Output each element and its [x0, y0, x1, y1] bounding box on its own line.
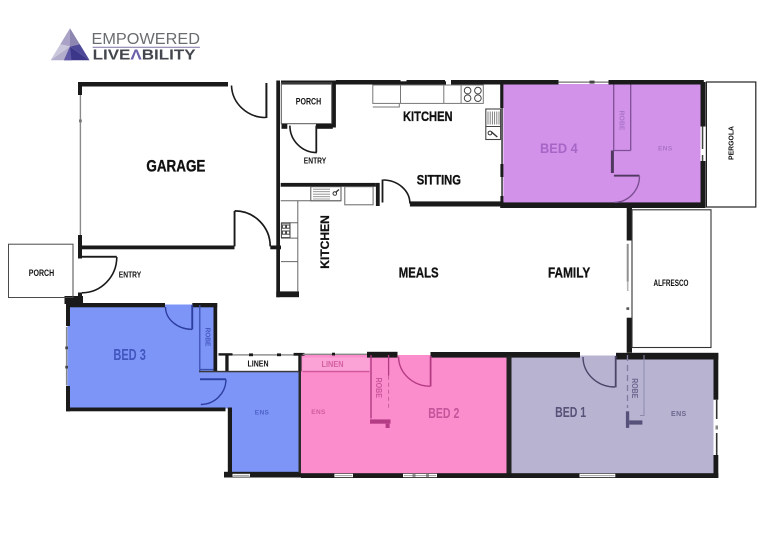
svg-text:BED 1: BED 1 — [555, 405, 586, 421]
svg-text:ROBE: ROBE — [204, 328, 211, 347]
svg-text:ROBE: ROBE — [618, 111, 627, 131]
svg-text:ENS: ENS — [671, 411, 687, 418]
svg-text:KITCHEN: KITCHEN — [320, 215, 332, 269]
svg-text:ENS: ENS — [311, 409, 326, 416]
svg-text:LIVEΛBILITY: LIVEΛBILITY — [93, 48, 196, 64]
svg-text:ALFRESCO: ALFRESCO — [654, 278, 689, 289]
svg-text:ENS: ENS — [255, 409, 270, 416]
svg-text:ENTRY: ENTRY — [119, 270, 142, 280]
svg-text:EMPOWERED: EMPOWERED — [92, 31, 201, 48]
svg-text:ENS: ENS — [658, 146, 673, 153]
svg-text:ROBE: ROBE — [630, 378, 639, 398]
svg-text:LINEN: LINEN — [322, 359, 344, 369]
svg-text:GARAGE: GARAGE — [146, 157, 205, 176]
svg-text:LINEN: LINEN — [248, 358, 269, 368]
svg-text:FAMILY: FAMILY — [548, 265, 590, 282]
svg-text:ROBE: ROBE — [374, 378, 383, 399]
svg-text:SITTING: SITTING — [417, 172, 461, 188]
svg-text:KITCHEN: KITCHEN — [403, 108, 453, 124]
svg-text:PERGOLA: PERGOLA — [726, 126, 735, 160]
svg-text:PORCH: PORCH — [29, 268, 54, 278]
svg-text:BED 3: BED 3 — [113, 347, 146, 364]
svg-text:MEALS: MEALS — [399, 265, 439, 282]
svg-text:BED 4: BED 4 — [540, 141, 578, 156]
svg-text:ENTRY: ENTRY — [304, 155, 327, 165]
svg-text:BED 2: BED 2 — [428, 406, 459, 422]
svg-text:PORCH: PORCH — [296, 96, 321, 106]
